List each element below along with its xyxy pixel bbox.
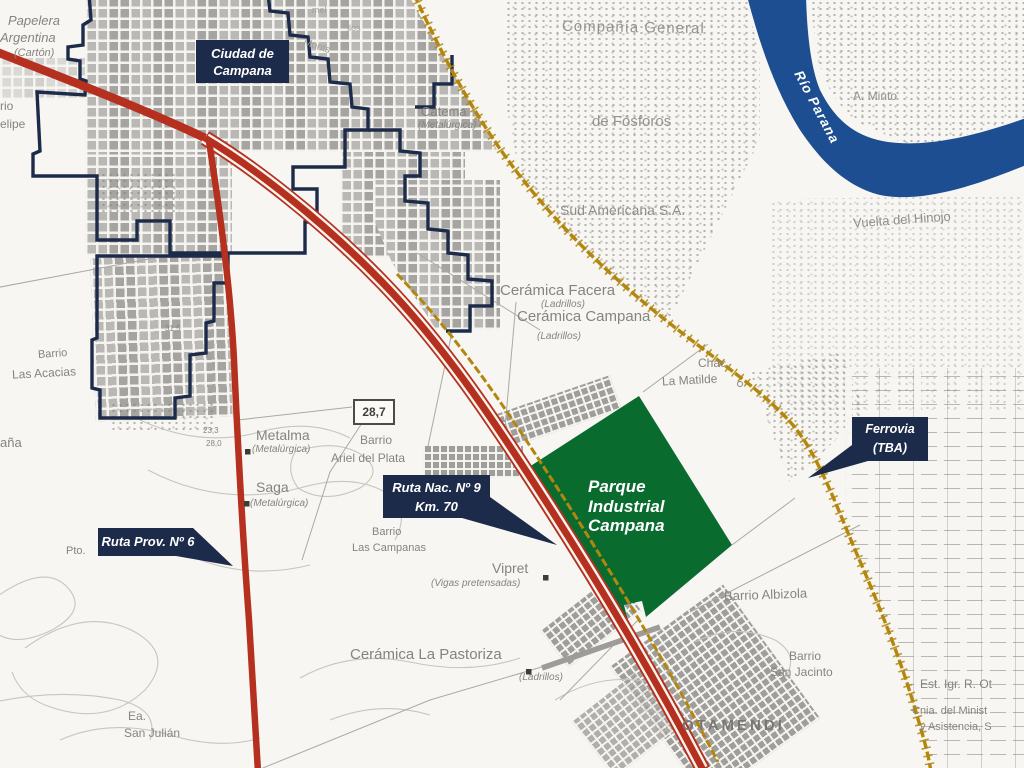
label-chac-la-matilde: La Matilde bbox=[662, 373, 718, 388]
label-altitude: 31,5 bbox=[165, 325, 181, 333]
label-ceramica-facera: Cerámica Facera bbox=[500, 283, 615, 298]
label-otamendi: OTAMENDI bbox=[682, 718, 785, 733]
label-barrio-san-jacinto: Barrio bbox=[789, 650, 821, 662]
label-barrio-las-campanas: Las Campanas bbox=[352, 543, 426, 554]
base-map-layers bbox=[0, 0, 1024, 768]
map-canvas: Papelera Argentina (Cartón) rio elipe me… bbox=[0, 0, 1024, 768]
label-a-minto: A. Minto bbox=[853, 90, 897, 102]
callout-ferrovia-line2: (TBA) bbox=[854, 439, 926, 458]
label-asistencia: y Asistencia, S bbox=[920, 722, 992, 733]
label-compania-general: Compañía General bbox=[562, 19, 705, 36]
label-vipret-sub: (Vigas pretensadas) bbox=[431, 579, 520, 589]
label-barrio-ariel: Barrio bbox=[360, 434, 392, 446]
road-ruta-prov-6 bbox=[209, 141, 258, 768]
callout-ruta-nac-line1: Ruta Nac. Nº 9 bbox=[385, 478, 488, 497]
label-compania-general: de Fósforos bbox=[592, 114, 671, 129]
label-chac-la-matilde: Chac. bbox=[698, 357, 729, 369]
label-est-igr: Est. Igr. R. Ot bbox=[920, 678, 992, 690]
park-label-line1: Parque bbox=[588, 477, 665, 497]
label-catema-sub: (Metalúrgica) bbox=[418, 121, 476, 131]
road-west-approach bbox=[0, 50, 205, 138]
label-ea-san-julian: Ea. bbox=[128, 710, 146, 722]
label-ceramica-la-pastoriza-sub: (Ladrillos) bbox=[519, 673, 563, 683]
park-label-line2: Industrial bbox=[588, 497, 665, 517]
label-saga-sub: (Metalúrgica) bbox=[250, 499, 308, 509]
label-metalma-sub: (Metalúrgica) bbox=[252, 445, 310, 455]
well-symbol bbox=[738, 382, 743, 387]
label-barrio-felipe: rio bbox=[0, 100, 13, 112]
label-papelera: Papelera bbox=[8, 14, 60, 27]
label-barrio-las-acacias: Barrio bbox=[38, 348, 68, 361]
label-metalma: Metalma bbox=[256, 428, 310, 442]
label-papelera: Argentina bbox=[0, 31, 56, 44]
park-label-line3: Campana bbox=[588, 516, 665, 536]
label-barrio-las-acacias: Las Acacias bbox=[12, 365, 77, 380]
label-street: mel bbox=[312, 6, 327, 15]
label-ceramica-campana: Cerámica Campana bbox=[517, 309, 650, 324]
label-barrio-san-jacinto: San Jacinto bbox=[770, 666, 833, 678]
label-cnia-ministerio: Cnia. del Minist bbox=[912, 706, 987, 717]
ciudad-de-campana-box: Ciudad de Campana bbox=[196, 40, 289, 83]
label-catema: Catema bbox=[421, 105, 467, 118]
label-bana: aña bbox=[0, 436, 22, 449]
ciudad-box-line1: Ciudad de bbox=[211, 45, 274, 62]
label-saga: Saga bbox=[256, 480, 289, 494]
label-pto: Pto. bbox=[66, 546, 86, 557]
label-barrio-ariel: Ariel del Plata bbox=[331, 452, 405, 464]
industrial-park-label: Parque Industrial Campana bbox=[588, 477, 665, 536]
label-vipret: Vipret bbox=[492, 561, 528, 575]
label-sud-americana: Sud Americana S.A. bbox=[560, 203, 685, 217]
label-street: llos bbox=[347, 24, 361, 33]
label-ea-san-julian: San Julián bbox=[124, 727, 180, 739]
label-barrio-felipe: elipe bbox=[0, 118, 25, 130]
label-ceramica-la-pastoriza: Cerámica La Pastoriza bbox=[350, 647, 502, 662]
label-barrio-las-campanas: Barrio bbox=[372, 527, 401, 538]
label-ceramica-campana-sub: (Ladrillos) bbox=[537, 332, 581, 342]
label-barrio-albizola: Barrio Albizola bbox=[724, 587, 808, 603]
callout-ferrovia-line1: Ferrovia bbox=[854, 420, 926, 439]
callout-ruta-prov-line1: Ruta Prov. Nº 6 bbox=[100, 534, 196, 549]
callout-ferrovia: Ferrovia (TBA) bbox=[854, 420, 926, 458]
altitude-box-value: 28,7 bbox=[362, 405, 385, 419]
altitude-box: 28,7 bbox=[353, 399, 395, 425]
label-altitude: 28,0 bbox=[206, 440, 222, 448]
ciudad-box-line2: Campana bbox=[213, 62, 272, 79]
label-altitude: 23,3 bbox=[203, 427, 219, 435]
callout-ruta-nac-line2: Km. 70 bbox=[385, 497, 488, 516]
label-papelera: (Cartón) bbox=[14, 48, 54, 59]
callout-ruta-nac: Ruta Nac. Nº 9 Km. 70 bbox=[385, 478, 488, 516]
callout-ruta-prov: Ruta Prov. Nº 6 bbox=[100, 534, 196, 549]
